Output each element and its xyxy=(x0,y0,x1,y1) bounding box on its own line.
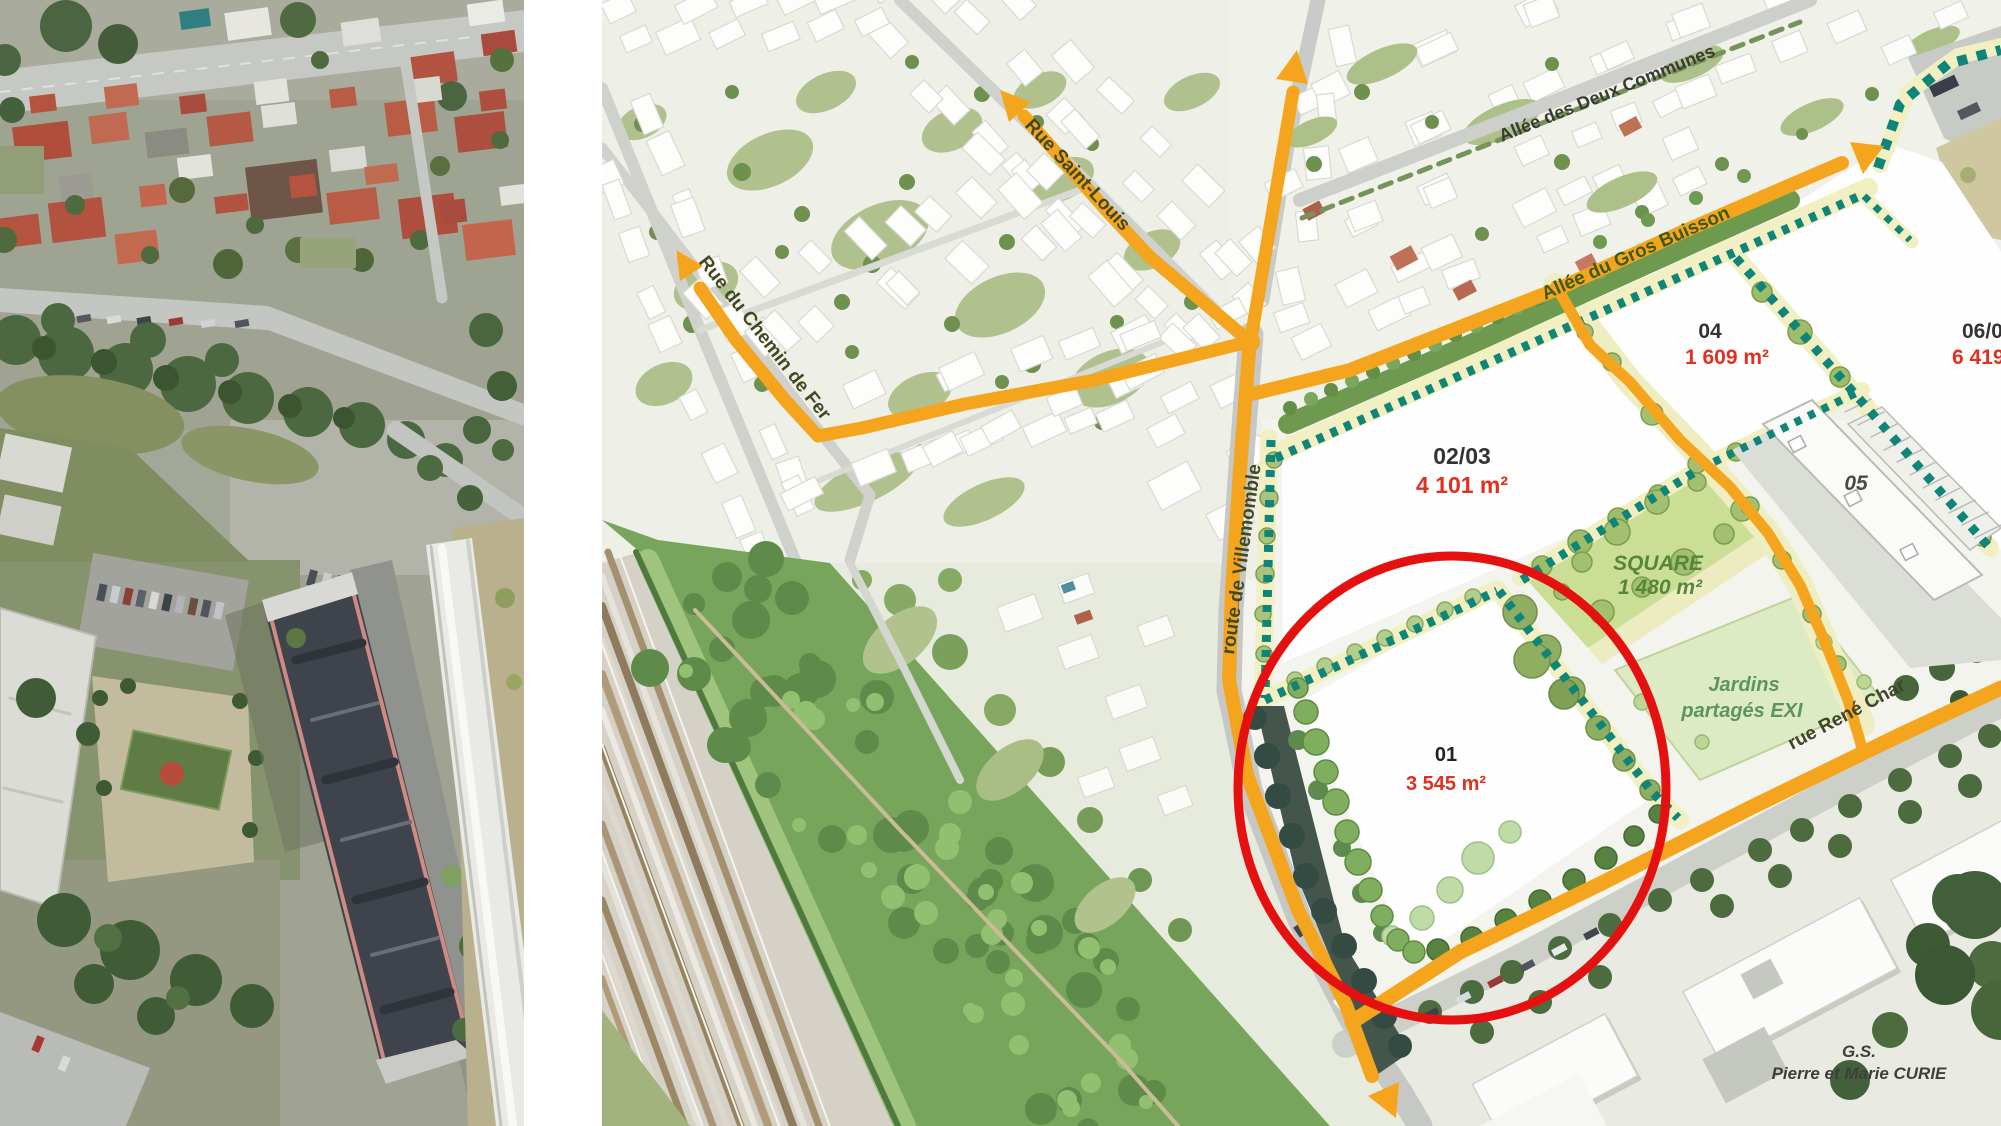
svg-text:1 480 m²: 1 480 m² xyxy=(1618,576,1703,599)
svg-text:02/03: 02/03 xyxy=(1433,443,1491,469)
svg-text:G.S.: G.S. xyxy=(1842,1042,1876,1061)
svg-text:4 101 m²: 4 101 m² xyxy=(1416,472,1508,498)
svg-text:6 419 m²: 6 419 m² xyxy=(1952,346,2001,369)
svg-text:partagés EXI: partagés EXI xyxy=(1680,700,1803,722)
svg-text:05: 05 xyxy=(1844,472,1868,495)
svg-text:1 609 m²: 1 609 m² xyxy=(1685,346,1769,369)
svg-text:01: 01 xyxy=(1435,744,1457,766)
svg-text:SQUARE: SQUARE xyxy=(1613,552,1704,575)
svg-text:3 545 m²: 3 545 m² xyxy=(1406,773,1486,795)
svg-text:Pierre et Marie CURIE: Pierre et Marie CURIE xyxy=(1772,1064,1947,1083)
svg-text:04: 04 xyxy=(1698,320,1722,343)
svg-text:Jardins: Jardins xyxy=(1708,674,1779,696)
svg-text:06/07: 06/07 xyxy=(1962,320,2001,343)
